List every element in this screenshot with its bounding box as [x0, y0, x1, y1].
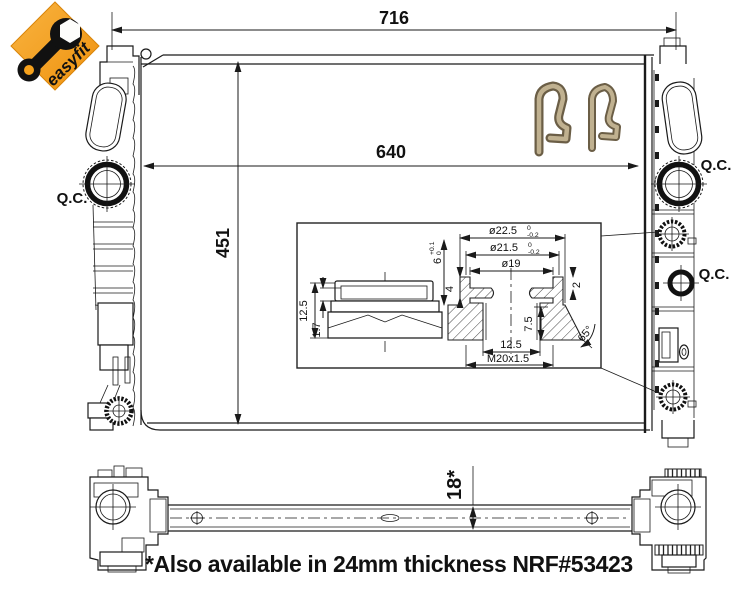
- dim-overall-width-label: 716: [379, 8, 409, 28]
- detail-dia-outer-label: ø22.5: [489, 225, 517, 237]
- side-view-right-fitting: [632, 469, 706, 573]
- detail-dia-outer-tol-top: 0: [527, 225, 531, 232]
- detail-dia-mid-tol-bot: -0.2: [528, 249, 540, 256]
- detail-seat-depth-label: 6: [432, 258, 444, 264]
- detail-dia-mid-tol-top: 0: [528, 242, 532, 249]
- detail-inset: 12.5 1.7 ø22.5 0 -0.2 ø21.5 0 -0.2: [297, 223, 661, 394]
- detail-groove-top-label: 4: [444, 286, 456, 292]
- detail-seat-depth-tol-bot: 0: [436, 251, 443, 255]
- dim-core-height-label: 451: [213, 228, 233, 258]
- detail-thread-label: M20x1.5: [487, 353, 529, 365]
- detail-bore-width-label: 12.5: [500, 339, 521, 351]
- dim-thickness-label: 18*: [444, 470, 466, 500]
- retaining-clips: [539, 86, 617, 152]
- qc-label-left: Q.C.: [57, 190, 88, 207]
- dim-core-width-label: 640: [376, 142, 406, 162]
- threaded-port-upper: [655, 217, 696, 251]
- technical-drawing-canvas: 716 640 451: [0, 0, 753, 600]
- right-tank: Q.C. Q.C.: [651, 38, 731, 447]
- footnote-text: *Also available in 24mm thickness NRF#53…: [145, 551, 633, 577]
- detail-dia-inner-label: ø19: [502, 258, 521, 270]
- threaded-port-lower: [656, 380, 696, 414]
- tank-opening-right: [660, 80, 704, 156]
- right-mid-bracket: [659, 328, 689, 362]
- detail-bore-depth-label: 7.5: [523, 316, 535, 331]
- qc-label-right-upper: Q.C.: [701, 157, 732, 174]
- detail-dia-mid-label: ø21.5: [490, 242, 518, 254]
- detail-dia-outer-tol-bot: -0.2: [527, 232, 539, 239]
- mounting-bracket-top-right: [660, 46, 686, 64]
- left-tank: Q.C.: [57, 46, 151, 430]
- qc-label-right-lower: Q.C.: [699, 266, 730, 283]
- dim-overall-width: 716: [112, 8, 676, 50]
- tank-opening-left: [83, 81, 128, 154]
- hose-port-right: [651, 156, 707, 212]
- easyfit-logo-badge: easyfit: [11, 2, 99, 90]
- dim-core-width: 640: [144, 142, 638, 166]
- dim-thickness: 18*: [444, 466, 473, 529]
- detail-plug-lip-label: 1.7: [311, 322, 323, 337]
- radiator-technical-drawing: 716 640 451: [0, 0, 753, 600]
- detail-plug-height-label: 12.5: [298, 300, 310, 321]
- detail-groove-lip-label: 2: [571, 282, 583, 288]
- mounting-bracket-bottom-right: [662, 420, 694, 438]
- detail-seat-depth-tol-top: +0.1: [429, 241, 436, 255]
- left-tank-ribs: [93, 222, 133, 309]
- dim-core-height: 451: [213, 62, 238, 424]
